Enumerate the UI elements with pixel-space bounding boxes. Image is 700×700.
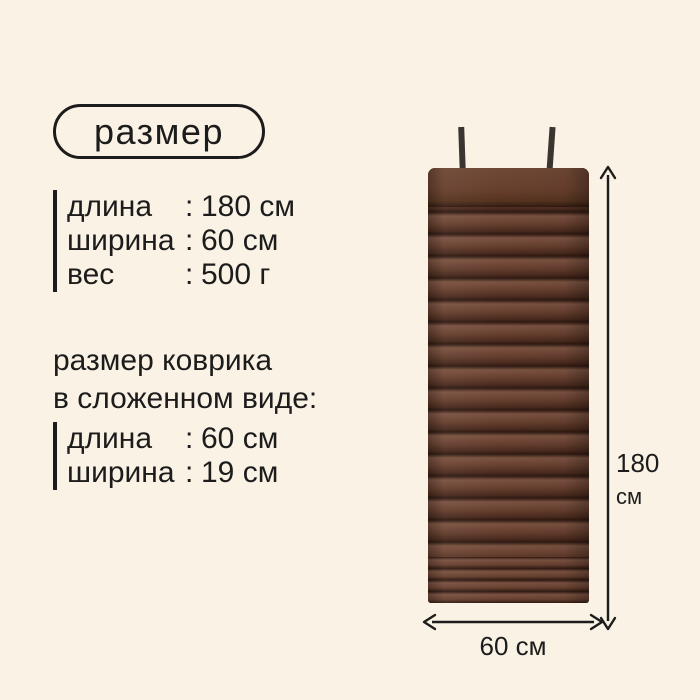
mat-strap-left	[458, 127, 466, 172]
mat-strap-right	[546, 127, 555, 172]
folded-heading-line1: размер коврика	[53, 342, 317, 380]
height-value: 180	[616, 447, 659, 480]
spec-colon: :	[185, 458, 201, 488]
folded-heading-line2: в сложенном виде:	[53, 380, 317, 418]
spec-value-weight: 500 г	[201, 260, 295, 290]
width-dimension-label: 60 см	[424, 631, 602, 662]
spec-row-width: ширина : 60 см	[67, 224, 295, 258]
height-dimension-label: 180 см	[616, 447, 659, 510]
folded-mat-image	[428, 168, 589, 603]
folded-size-heading: размер коврика в сложенном виде:	[53, 342, 317, 418]
spec-value-width: 60 см	[201, 226, 295, 256]
size-badge: размер	[53, 104, 265, 159]
folded-label-length: длина	[67, 424, 185, 454]
width-dimension-arrow	[422, 611, 604, 633]
spec-colon: :	[185, 192, 201, 222]
height-unit: см	[616, 483, 659, 511]
product-size-infographic: размер длина : 180 см ширина : 60 см вес…	[0, 0, 700, 700]
size-badge-label: размер	[94, 114, 224, 150]
folded-value-width: 19 см	[201, 458, 278, 488]
mat-shading	[428, 168, 589, 603]
folded-row-width: ширина : 19 см	[67, 456, 278, 490]
folded-specs-block: длина : 60 см ширина : 19 см	[53, 422, 278, 490]
height-dimension-arrow	[598, 165, 618, 631]
folded-value-length: 60 см	[201, 424, 278, 454]
spec-label-length: длина	[67, 192, 185, 222]
spec-colon: :	[185, 226, 201, 256]
folded-row-length: длина : 60 см	[67, 422, 278, 456]
folded-label-width: ширина	[67, 458, 185, 488]
spec-label-weight: вес	[67, 260, 185, 290]
spec-colon: :	[185, 424, 201, 454]
spec-value-length: 180 см	[201, 192, 295, 222]
main-specs-block: длина : 180 см ширина : 60 см вес : 500 …	[53, 190, 295, 292]
spec-row-weight: вес : 500 г	[67, 258, 295, 292]
spec-label-width: ширина	[67, 226, 185, 256]
spec-colon: :	[185, 260, 201, 290]
spec-row-length: длина : 180 см	[67, 190, 295, 224]
